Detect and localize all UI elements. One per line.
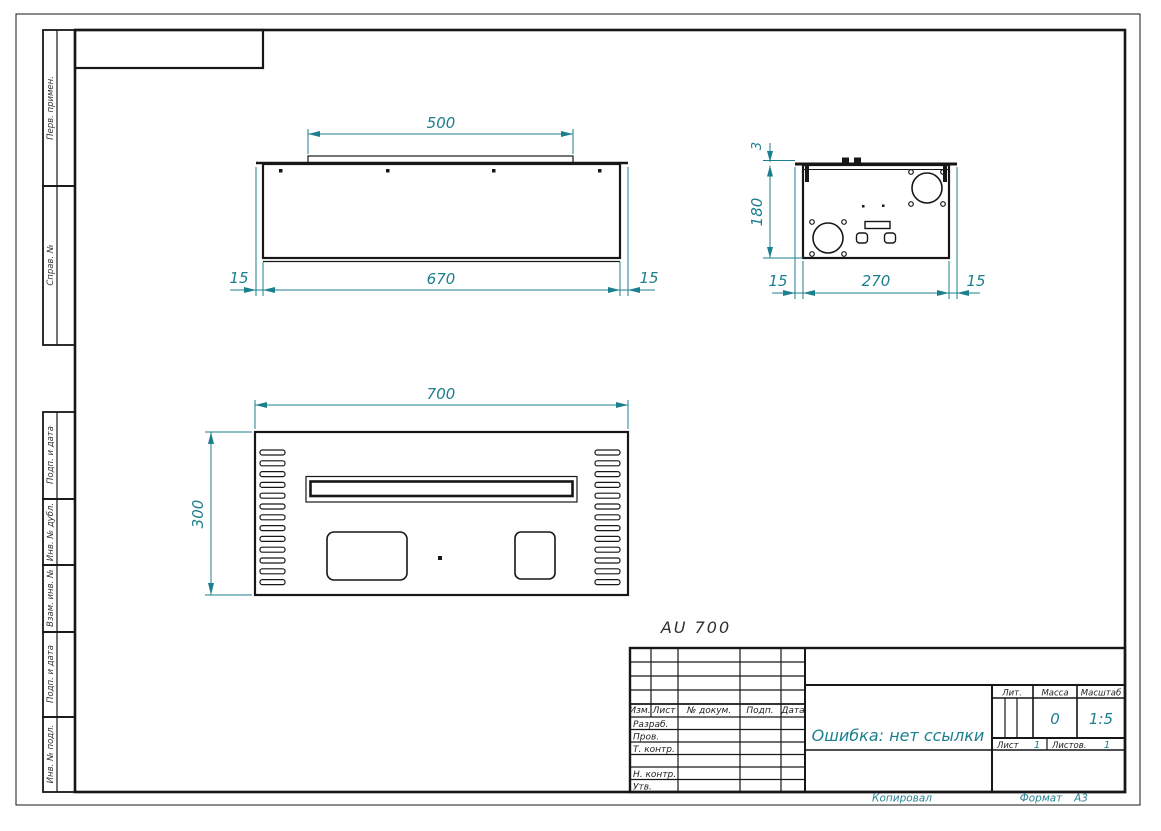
dim-side-right: 15 — [966, 272, 985, 290]
vent-slots-right — [595, 450, 620, 585]
margin-label-perv-primen: Перв. примен. — [46, 76, 56, 140]
mass-value: 0 — [1050, 710, 1060, 728]
sheet-value: 1 — [1034, 740, 1040, 751]
drawing-canvas: Перв. примен. Справ. № Подп. и дата Инв.… — [0, 0, 1161, 831]
row-razrab: Разраб. — [633, 720, 668, 730]
sheet-frame — [16, 14, 1140, 805]
row-prov: Пров. — [633, 733, 659, 743]
side-view: 3 180 15 270 15 — [748, 142, 986, 299]
dim-top-depth: 300 — [189, 500, 207, 529]
row-t-kontr: Т. контр. — [633, 745, 675, 755]
top-view: 700 300 — [189, 385, 628, 595]
drawing-caption: AU 700 — [660, 618, 731, 637]
side-cutout-left — [857, 233, 868, 243]
front-body — [263, 164, 620, 258]
dim-side-left: 15 — [768, 272, 787, 290]
small-opening — [515, 532, 555, 579]
sheets-label: Листов. — [1051, 741, 1086, 751]
large-opening — [327, 532, 407, 580]
dim-front-body: 670 — [427, 270, 456, 288]
side-body — [803, 165, 949, 258]
margin-label-podp-data2: Подп. и дата — [46, 645, 56, 703]
dim-front-right: 15 — [639, 269, 658, 287]
top-left-stamp-box — [75, 30, 263, 68]
margin-label-sprav-no: Справ. № — [46, 244, 56, 286]
footer-strip: Копировал Формат А3 — [872, 793, 1088, 805]
scale-value: 1:5 — [1089, 710, 1113, 728]
document-name: Ошибка: нет ссылки — [812, 726, 985, 745]
col-list: Лист — [652, 706, 677, 716]
dim-side-width: 270 — [862, 272, 891, 290]
front-dimensions: 500 670 15 15 — [229, 114, 658, 296]
row-n-kontr: Н. контр. — [633, 770, 676, 780]
format-label: Формат — [1020, 793, 1063, 805]
lit-label: Лит. — [1001, 689, 1022, 699]
dim-side-height: 180 — [748, 198, 766, 227]
title-block: Изм. Лист № докум. Подп. Дата Разраб. Пр… — [629, 648, 1125, 793]
margin-label-inv-dubl: Инв. № дубл. — [46, 503, 56, 561]
row-utv: Утв. — [633, 783, 652, 793]
sheet-label: Лист — [996, 741, 1020, 751]
side-pin-holes — [862, 205, 885, 208]
display-slot-inner — [311, 482, 573, 497]
side-connector-slot — [865, 222, 890, 229]
dim-side-lid: 3 — [750, 142, 765, 150]
margin-label-inv-podl: Инв. № подл. — [46, 725, 56, 784]
drawing-sheet: Перв. примен. Справ. № Подп. и дата Инв.… — [0, 0, 1161, 831]
col-dokum: № докум. — [686, 706, 731, 716]
format-value: А3 — [1073, 793, 1088, 805]
front-view: 500 670 15 15 — [229, 114, 658, 296]
dim-front-left: 15 — [229, 269, 248, 287]
front-screws — [279, 169, 602, 173]
col-izm: Изм. — [629, 706, 650, 716]
col-podp: Подп. — [746, 706, 773, 716]
copied-by-label: Копировал — [872, 793, 932, 805]
col-data: Дата — [780, 706, 804, 716]
side-corner-marks — [805, 166, 947, 182]
outer-border — [16, 14, 1140, 805]
mass-label: Масса — [1041, 689, 1068, 699]
dim-front-strip: 500 — [427, 114, 456, 132]
sheets-value: 1 — [1104, 740, 1110, 751]
center-hole — [438, 556, 442, 560]
top-body — [255, 432, 628, 595]
section-dividers — [805, 648, 992, 792]
dim-top-width: 700 — [427, 385, 456, 403]
margin-label-vzam-inv: Взам. инв. № — [46, 569, 56, 627]
margin-label-podp-data1: Подп. и дата — [46, 426, 56, 484]
fan-cutout-top-right — [909, 170, 946, 207]
side-cutout-right — [885, 233, 896, 243]
vent-slots-left — [260, 450, 285, 585]
margin-column: Перв. примен. Справ. № Подп. и дата Инв.… — [43, 30, 75, 792]
scale-label: Масштаб — [1081, 689, 1121, 699]
fan-cutout-bottom-left — [810, 220, 847, 257]
inner-frame — [75, 30, 1125, 792]
